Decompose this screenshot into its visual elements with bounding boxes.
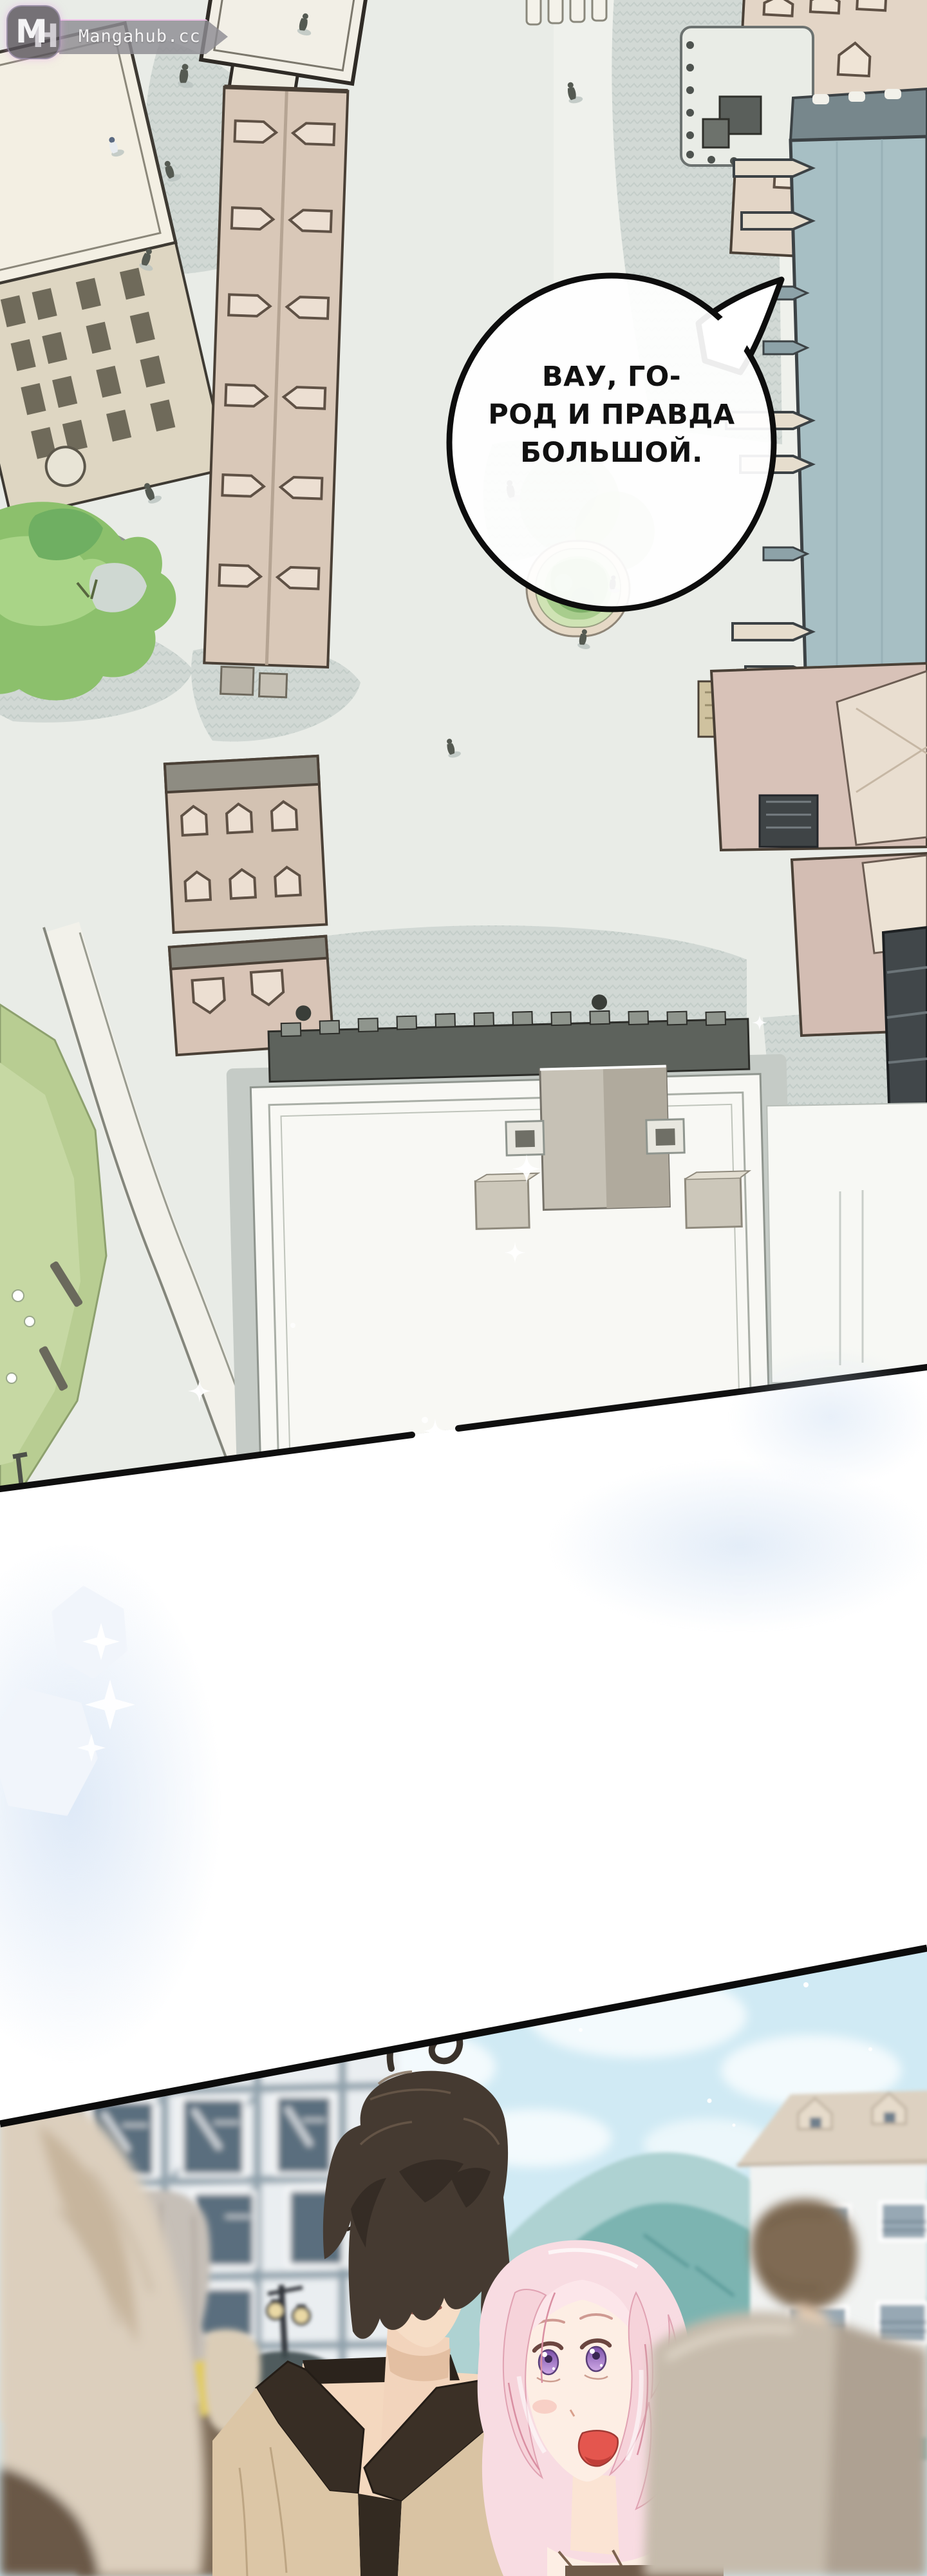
panel-aerial-town	[0, 0, 927, 1501]
bubble-line-1: ВАУ, ГО-	[453, 358, 771, 396]
watermark[interactable]: Mangahub.cc H M	[6, 5, 238, 67]
woman-neck	[570, 2473, 619, 2555]
blue-glow	[727, 1346, 927, 1488]
blue-glow	[547, 1459, 927, 1633]
building-tall-beige	[203, 87, 348, 699]
manga-page: ВАУ, ГО- РОД И ПРАВДА БОЛЬШОЙ. Mangahub.…	[0, 0, 927, 2576]
house-pentagon-1	[165, 756, 326, 933]
watermark-site-text[interactable]: Mangahub.cc	[79, 26, 201, 46]
watermark-logo-m: M	[15, 13, 48, 50]
woman-blush	[532, 2400, 557, 2414]
watermark-logo[interactable]: H M	[6, 5, 61, 59]
panel-street-scene	[0, 1932, 927, 2576]
watermark-banner[interactable]: Mangahub.cc	[59, 19, 228, 54]
speech-bubble-text: ВАУ, ГО- РОД И ПРАВДА БОЛЬШОЙ.	[453, 358, 771, 472]
bubble-line-3: БОЛЬШОЙ.	[453, 434, 771, 472]
bubble-line-2: РОД И ПРАВДА	[453, 396, 771, 434]
